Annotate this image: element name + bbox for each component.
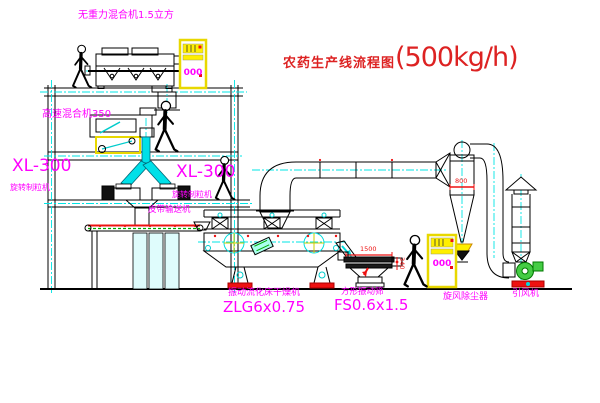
belt-conveyor [85,222,210,289]
person-figure-ground [405,236,427,287]
cad-drawing: 农药生产线流程图 (500kg/h) 无重力混合机1.5立方 高速混合机350 … [0,0,600,403]
dimension-cyclone-800: 800 [455,178,467,185]
dimension-screen-1500: 1500 [360,246,377,253]
control-cabinet-roof [180,40,206,88]
gravity-free-mixer [85,48,188,110]
label-dryer-name: 振动流化床干燥机 [228,289,300,298]
label-gravity-mixer: 无重力混合机1.5立方 [78,11,174,21]
drawing-title: 农药生产线流程图 (500kg/h) [283,42,518,73]
person-figure-floor2 [156,101,178,151]
exhaust-duct [256,159,436,228]
label-high-speed-mixer: 高速混合机350 [42,110,111,120]
label-fan: 引风机 [512,290,539,299]
dimension-screen-340: 340 [399,257,406,269]
cabinet-ground-display: 000 [431,259,453,269]
label-dryer-model: ZLG6x0.75 [223,300,305,315]
vibrating-screen [338,252,402,287]
label-screen-model: FS0.6x1.5 [334,298,408,313]
cabinet-roof-display: 000 [182,68,204,78]
y-chute [116,137,175,189]
label-granulator-right-name: 旋转制粒机 [172,191,212,199]
label-belt-conveyor: 皮带输送机 [148,206,191,215]
label-granulator-left-name: 旋转制粒机 [10,184,50,192]
label-granulator-right-model: XL-300 [176,164,235,181]
title-capacity: (500kg/h) [395,42,518,73]
fluid-bed-dryer [204,210,356,288]
label-cyclone: 旋风除尘器 [443,293,488,302]
label-granulator-left-model: XL-300 [12,158,71,175]
induced-draft-fan [503,262,544,287]
title-main: 农药生产线流程图 [283,52,395,71]
